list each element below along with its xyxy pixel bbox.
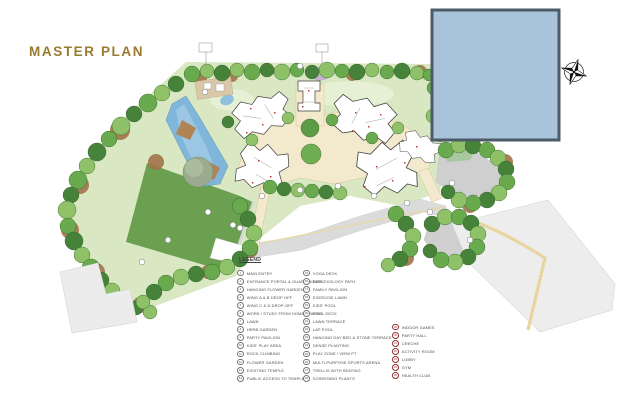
legend-item: 35HEALTH CLUB — [392, 372, 435, 380]
legend-item-label: HEALTH CLUB — [402, 373, 430, 378]
legend-item-number: 9 — [237, 334, 244, 341]
legend-item: 23HANGING DAY BED & STONE TERRACE — [303, 334, 392, 342]
legend-item-number: 23 — [303, 334, 310, 341]
legend-item-label: LAWN — [247, 319, 259, 324]
legend-item-label: GYM — [402, 365, 411, 370]
legend-item-label: PARTY HALL — [402, 333, 427, 338]
legend-item: 27TRELLIS WITH SEATING — [303, 366, 392, 374]
legend-column-2: 15YOGA DECK 16REFLEXOLOGY PATH 17FAMILY … — [303, 269, 392, 382]
legend-item-label: WING A & B DROP OFF — [247, 295, 292, 300]
legend-item-label: KIDS' PLAY AREA — [247, 343, 281, 348]
legend-item-label: LAWN TERRACE — [313, 319, 346, 324]
legend-item-label: KIDS' POOL — [313, 303, 336, 308]
legend-item-number: 18 — [303, 294, 310, 301]
legend-item-label: ROCK CLIMBING — [247, 351, 280, 356]
legend-item-label: TRELLIS WITH SEATING — [313, 368, 361, 373]
legend-item: 24DENSE PLANTING — [303, 342, 392, 350]
master-plan-page: MASTER PLAN — [0, 0, 618, 404]
legend-item-number: 34 — [392, 364, 399, 371]
legend-item-label: POOL DECK — [313, 311, 337, 316]
legend-item-number: 19 — [303, 302, 310, 309]
legend-item-label: PARTY PAVILION — [247, 335, 280, 340]
legend-item-label: MULTI-PURPOSE SPORTS ARENA — [313, 360, 380, 365]
legend-item-label: DENSE PLANTING — [313, 343, 349, 348]
legend-item: 32ACTIVITY ROOM — [392, 347, 435, 355]
legend-item-number: 35 — [392, 372, 399, 379]
legend-item-number: 3 — [237, 286, 244, 293]
legend-item-label: CRECHE — [402, 341, 420, 346]
legend-item-label: PUBLIC ACCESS TO TEMPLE — [247, 376, 305, 381]
legend-item-label: HANGING DAY BED & STONE TERRACE — [313, 335, 392, 340]
legend-item-number: 1 — [237, 270, 244, 277]
legend-item-label: YOGA DECK — [313, 271, 337, 276]
legend-item-label: EXERCISE LAWN — [313, 295, 347, 300]
legend-item-number: 26 — [303, 359, 310, 366]
legend-item-label: FAMILY PAVILION — [313, 287, 347, 292]
legend-item-number: 13 — [237, 367, 244, 374]
legend-item-number: 32 — [392, 348, 399, 355]
legend-item-label: INDOOR GAMES — [402, 325, 435, 330]
legend-item: 21LAWN TERRACE — [303, 318, 392, 326]
legend-item-number: 11 — [237, 351, 244, 358]
legend-item-label: SCREENING PLANTS — [313, 376, 355, 381]
legend-item: 34GYM — [392, 363, 435, 371]
legend-item-number: 33 — [392, 356, 399, 363]
legend-item: 26MULTI-PURPOSE SPORTS ARENA — [303, 358, 392, 366]
legend-item-label: MAIN ENTRY — [247, 271, 273, 276]
legend-item-number: 28 — [303, 375, 310, 382]
legend-item: 20POOL DECK — [303, 309, 392, 317]
legend-item-label: FLOWER GARDEN — [247, 360, 284, 365]
legend-item-number: 22 — [303, 326, 310, 333]
legend-item: 18EXERCISE LAWN — [303, 293, 392, 301]
legend-item: 19KIDS' POOL — [303, 301, 392, 309]
legend-item-number: 15 — [303, 270, 310, 277]
legend-item-number: 8 — [237, 326, 244, 333]
legend-item-number: 24 — [303, 342, 310, 349]
legend-item: 16REFLEXOLOGY PATH — [303, 277, 392, 285]
legend-item-number: 30 — [392, 332, 399, 339]
blue-inset-box — [432, 10, 559, 140]
legend-item: 15YOGA DECK — [303, 269, 392, 277]
compass-rose-icon — [558, 56, 591, 89]
legend-item-number: 21 — [303, 318, 310, 325]
legend-item: 31CRECHE — [392, 339, 435, 347]
legend-item-number: 7 — [237, 318, 244, 325]
legend-item-label: EXISTING TEMPLE — [247, 368, 284, 373]
legend-item: 30PARTY HALL — [392, 331, 435, 339]
legend-item: 29INDOOR GAMES — [392, 323, 435, 331]
legend-item: 28SCREENING PLANTS — [303, 374, 392, 382]
legend-title: LEGEND — [239, 257, 615, 263]
legend-item-number: 5 — [237, 302, 244, 309]
legend-item-number: 17 — [303, 286, 310, 293]
legend-item: 22LAP POOL — [303, 326, 392, 334]
legend-item-label: HERB GARDEN — [247, 327, 277, 332]
legend-item-number: 27 — [303, 367, 310, 374]
legend-item-number: 25 — [303, 351, 310, 358]
legend-item-number: 16 — [303, 278, 310, 285]
legend-item-label: REFLEXOLOGY PATH — [313, 279, 356, 284]
legend-item-number: 31 — [392, 340, 399, 347]
legend-item-label: ACTIVITY ROOM — [402, 349, 435, 354]
legend-item-label: WING C & D DROP-OFF — [247, 303, 294, 308]
legend-item-number: 20 — [303, 310, 310, 317]
legend-item-number: 14 — [237, 375, 244, 382]
legend-item: 25PLAY ZONE / VIEW PT — [303, 350, 392, 358]
legend-item: 17FAMILY PAVILION — [303, 285, 392, 293]
legend-item: 33LOBBY — [392, 355, 435, 363]
legend-item-number: 10 — [237, 342, 244, 349]
legend-item-number: 29 — [392, 324, 399, 331]
legend: LEGEND 1MAIN ENTRY 2ENTRANCE PORTAL & GU… — [237, 257, 615, 263]
legend-item-label: HANGING FLOWER GARDEN — [247, 287, 304, 292]
legend-item-number: 4 — [237, 294, 244, 301]
legend-item-label: PLAY ZONE / VIEW PT — [313, 351, 357, 356]
legend-item-number: 12 — [237, 359, 244, 366]
legend-column-3: 29INDOOR GAMES 30PARTY HALL 31CRECHE 32A… — [392, 323, 435, 380]
legend-item-label: LAP POOL — [313, 327, 334, 332]
legend-item-label: LOBBY — [402, 357, 416, 362]
right-plaza-area — [424, 144, 615, 332]
legend-item-number: 6 — [237, 310, 244, 317]
legend-item-number: 2 — [237, 278, 244, 285]
